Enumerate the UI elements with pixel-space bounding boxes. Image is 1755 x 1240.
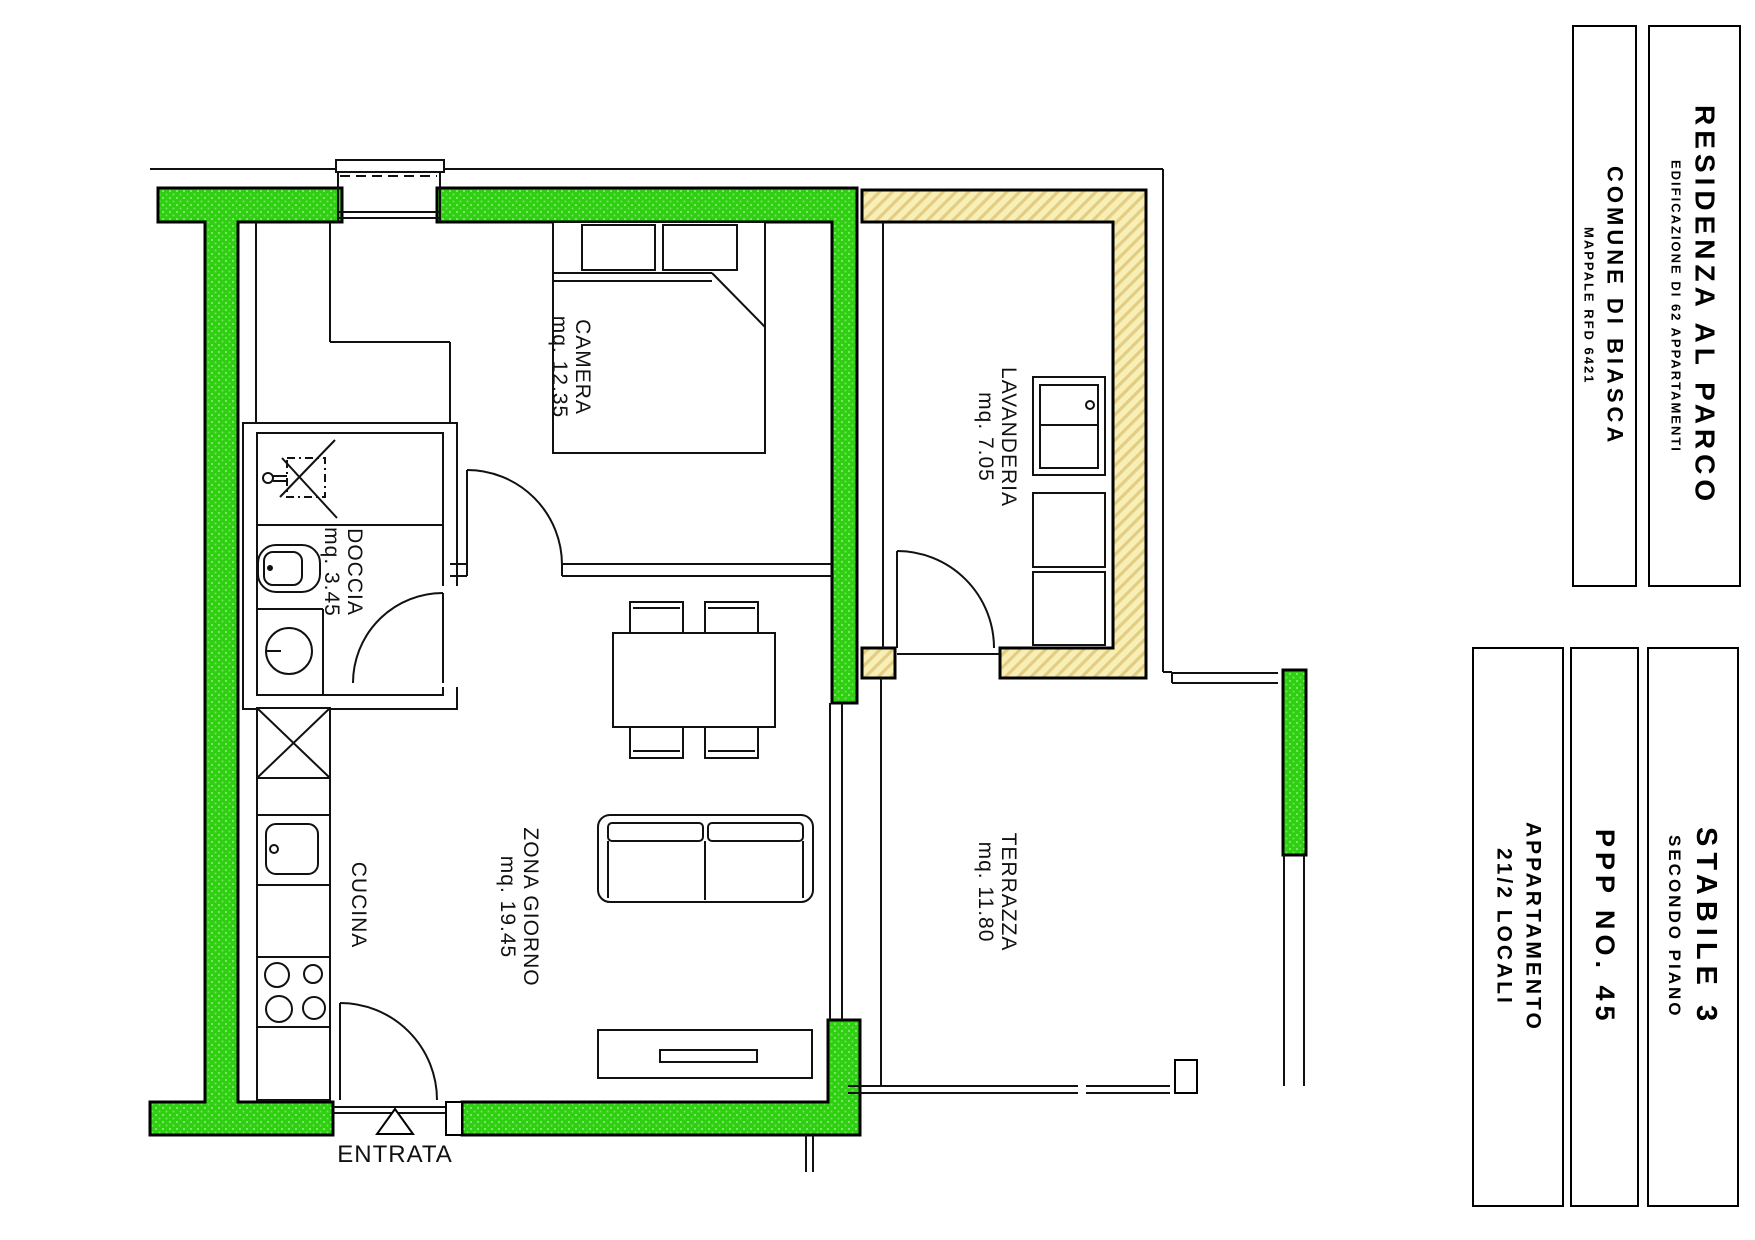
laundry-door xyxy=(897,551,994,648)
residenza-subtitle: EDIFICAZIONE DI 62 APPARTAMENTI xyxy=(1669,105,1684,506)
cucina-label: CUCINA xyxy=(347,862,370,949)
dining-table xyxy=(613,633,775,727)
stabile-title: STABILE 3 xyxy=(1689,827,1722,1027)
terrazza-area: mq. 11.80 xyxy=(974,842,997,943)
title-box-stabile: STABILE 3 SECONDO PIANO xyxy=(1647,647,1739,1207)
kitchen-sink-symbol xyxy=(266,824,318,874)
title-box-residenza: RESIDENZA AL PARCO EDIFICAZIONE DI 62 AP… xyxy=(1648,25,1741,587)
camera-closet-lines xyxy=(256,222,450,423)
stabile-subtitle: SECONDO PIANO xyxy=(1664,827,1684,1027)
camera-area: mq. 12.35 xyxy=(548,316,571,418)
title-box-appartamento: APPARTAMENTO 21/2 LOCALI xyxy=(1472,647,1564,1207)
terrace-glass-door xyxy=(830,703,842,1020)
doccia-area: mq. 3.45 xyxy=(320,527,343,617)
floorplan-page: CAMERA mq. 12.35 DOCCIA mq. 3.45 ZONA GI… xyxy=(0,0,1755,1240)
appartamento-subtitle: 21/2 LOCALI xyxy=(1492,822,1516,1032)
laundry-tub-symbol xyxy=(1033,377,1105,475)
comune-title: COMUNE DI BIASCA xyxy=(1602,166,1628,446)
camera-door xyxy=(467,470,562,565)
wall-terrace-right xyxy=(1283,670,1306,855)
dryer-symbol xyxy=(1033,572,1105,645)
entrance-door xyxy=(340,1003,437,1100)
laundry-wall-left-piece xyxy=(862,648,895,678)
camera-label: CAMERA xyxy=(571,319,594,415)
lavanderia-label: LAVANDERIA xyxy=(997,367,1020,507)
title-box-comune: COMUNE DI BIASCA MAPPALE RFD 6421 xyxy=(1572,25,1637,587)
toilet-symbol xyxy=(258,545,320,592)
ppp-title: PPP NO. 45 xyxy=(1589,829,1620,1026)
dining-set-symbol xyxy=(613,602,775,758)
zona-giorno-label: ZONA GIORNO xyxy=(519,827,542,986)
appartamento-title: APPARTAMENTO xyxy=(1521,822,1545,1032)
terrace-parapet xyxy=(806,673,1304,1172)
washing-machine-symbol xyxy=(1033,493,1105,567)
comune-subtitle: MAPPALE RFD 6421 xyxy=(1582,166,1597,446)
terrazza-label: TERRAZZA xyxy=(997,833,1020,952)
camera-partition xyxy=(450,564,832,576)
doccia-label: DOCCIA xyxy=(343,528,366,616)
zona-giorno-area: mq. 19.45 xyxy=(496,856,519,958)
kitchen-cucina xyxy=(257,708,330,1100)
sofa-symbol xyxy=(598,815,813,902)
entrata-label: ENTRATA xyxy=(337,1141,452,1168)
sideboard-symbol xyxy=(598,1030,812,1078)
entrance xyxy=(333,1003,462,1135)
entrance-door-post xyxy=(446,1102,462,1135)
lavanderia-area: mq. 7.05 xyxy=(974,392,997,482)
residenza-title: RESIDENZA AL PARCO xyxy=(1689,105,1721,506)
title-box-ppp: PPP NO. 45 xyxy=(1570,647,1639,1207)
camera-window xyxy=(336,160,444,222)
